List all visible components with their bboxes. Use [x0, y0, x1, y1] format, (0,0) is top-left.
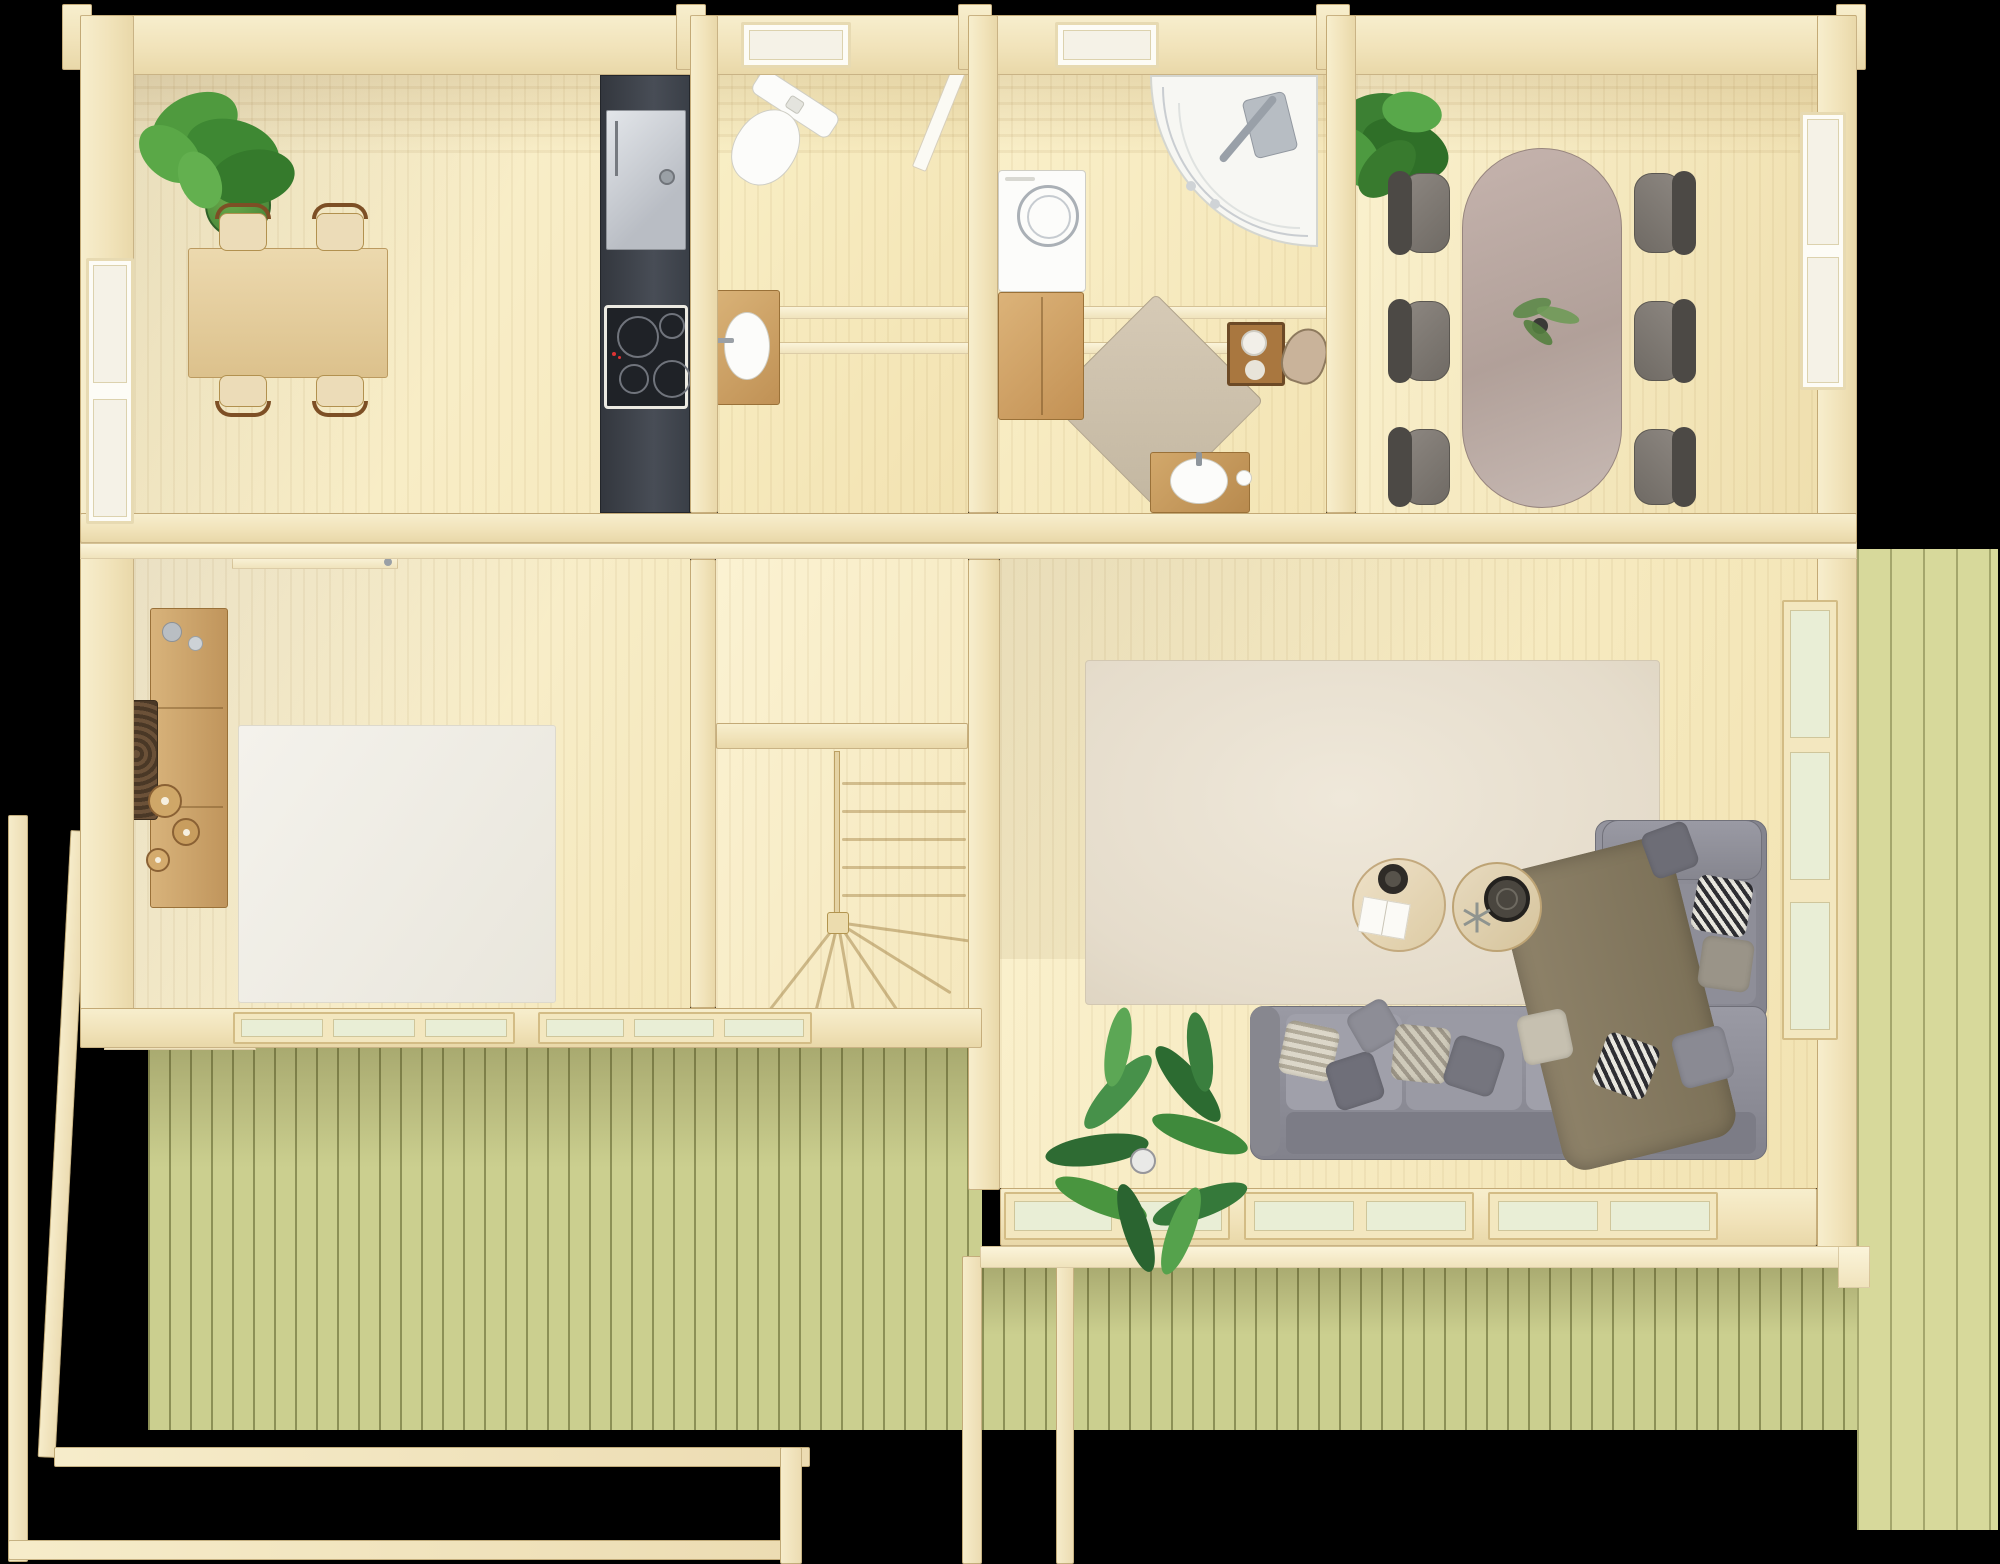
candle: [172, 818, 200, 846]
wall-kitchen-wc: [690, 15, 718, 513]
pergola-post-right: [780, 1447, 802, 1564]
deck-back-terrace: [982, 1265, 1868, 1430]
bath-top-window: [1055, 22, 1159, 68]
sofa-pillow: [1697, 935, 1756, 994]
dining-chair: [1630, 296, 1696, 386]
deck-right-terrace: [1857, 549, 1998, 1530]
dining-chair: [1388, 424, 1454, 510]
dining-side-window: [1800, 112, 1846, 390]
bath-cup: [1236, 470, 1252, 486]
wc-faucet: [716, 338, 734, 343]
deck-left-terrace: [148, 1048, 982, 1430]
candle: [146, 848, 170, 872]
hall-terrace-door: [538, 1012, 812, 1044]
coffee-table: [1352, 858, 1446, 952]
living-terrace-sill: [980, 1246, 1857, 1268]
sofa-pillow: [1690, 874, 1755, 939]
kitchen-chair: [312, 375, 368, 417]
stairs-newel-post: [827, 912, 849, 934]
pergola-post-center-b: [1056, 1256, 1074, 1564]
candle: [148, 784, 182, 818]
bottom-wall-left: [80, 1008, 982, 1048]
pergola-beam-left-outer: [8, 815, 28, 1562]
kitchen-side-window: [86, 258, 134, 524]
kitchen-table: [188, 248, 388, 378]
decor-bowl: [1484, 876, 1530, 922]
sill-corner-post: [1838, 1246, 1870, 1288]
console-vase: [162, 622, 182, 642]
dining-chair: [1388, 296, 1454, 386]
kitchen-chair: [215, 203, 271, 251]
bath-basin-faucet: [1196, 452, 1202, 466]
bath-cabinet: [998, 292, 1084, 420]
washing-machine: [998, 170, 1086, 292]
stairs-railing: [834, 751, 840, 921]
open-book: [1357, 896, 1411, 940]
kitchen-chair: [215, 375, 271, 417]
floor-plan-canvas: [0, 0, 2000, 1564]
living-side-window: [1782, 600, 1838, 1040]
console-vase: [188, 636, 203, 651]
bedroom-rug: [238, 725, 556, 1003]
dining-chair: [1388, 168, 1454, 258]
wall-bath-dining: [1326, 15, 1356, 513]
coffee-table-bowl: [1378, 864, 1408, 894]
induction-hob: [604, 305, 688, 409]
wall-bedroom-hall: [690, 559, 716, 1008]
wc-top-window: [741, 22, 851, 68]
towel-crates: [1227, 322, 1329, 388]
dining-chair: [1630, 168, 1696, 258]
dining-chair: [1630, 424, 1696, 510]
kitchen-chair: [312, 203, 368, 251]
wall-wc-bath: [968, 15, 998, 513]
living-terrace-door: [1244, 1192, 1474, 1240]
pergola-beam-bottom-inner: [54, 1447, 810, 1467]
sliding-door-handle: [384, 558, 392, 566]
pergola-post-center-a: [962, 1256, 982, 1564]
middle-wall-trim: [80, 543, 1857, 559]
middle-wall: [80, 513, 1857, 543]
wall-hall-living: [968, 559, 1000, 1190]
living-terrace-door: [1488, 1192, 1718, 1240]
fridge: [606, 110, 686, 250]
coffee-table: [1452, 862, 1542, 952]
sofa-pillow: [1515, 1007, 1574, 1066]
bedroom-terrace-door: [233, 1012, 515, 1044]
stairwell-wall: [716, 723, 968, 749]
wc-basin: [724, 312, 770, 380]
pergola-beam-bottom-outer: [8, 1540, 800, 1560]
